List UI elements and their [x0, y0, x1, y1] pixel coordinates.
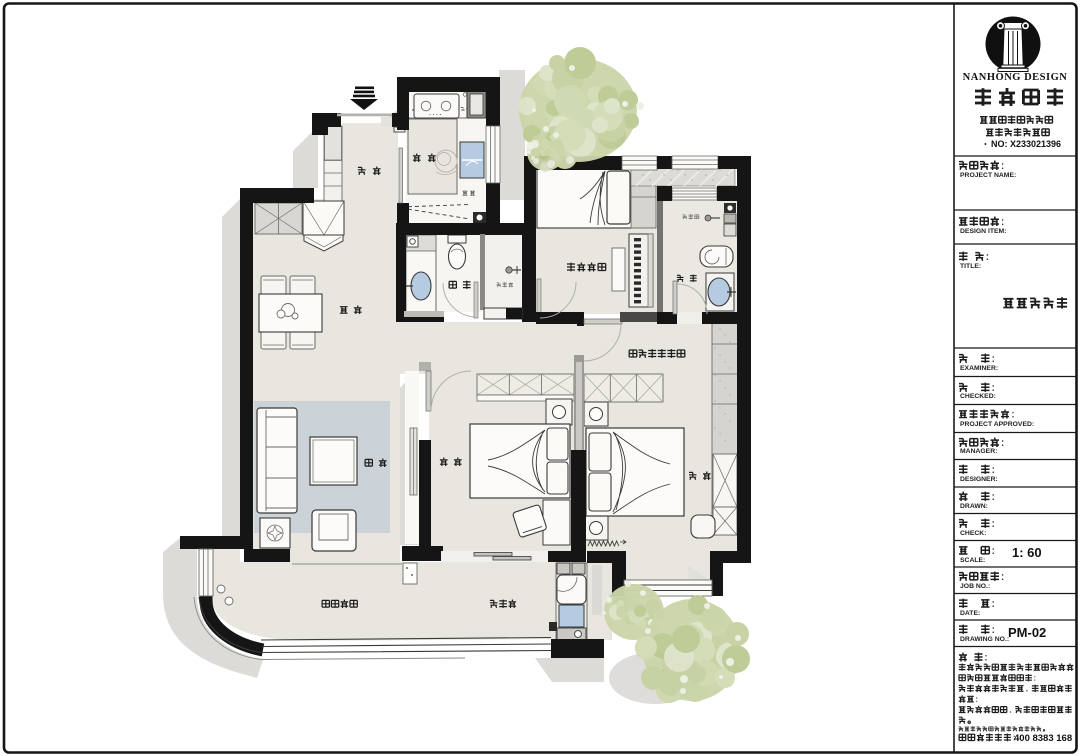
svg-text:TITLE:: TITLE: — [960, 263, 981, 270]
svg-text:EXAMINER:: EXAMINER: — [960, 365, 998, 372]
svg-text:1: 60: 1: 60 — [1012, 545, 1042, 560]
svg-text:CHECKED:: CHECKED: — [960, 393, 996, 400]
svg-text:DRAWN:: DRAWN: — [960, 503, 988, 510]
svg-text:SCALE:: SCALE: — [960, 557, 985, 564]
svg-text:MANAGER:: MANAGER: — [960, 448, 997, 455]
svg-text:DATE:: DATE: — [960, 610, 980, 617]
svg-text:DRAWING NO.:: DRAWING NO.: — [960, 636, 1009, 643]
svg-text:PM-02: PM-02 — [1008, 625, 1046, 640]
svg-text:PROJECT NAME:: PROJECT NAME: — [960, 172, 1016, 179]
svg-text:CHECK:: CHECK: — [960, 530, 986, 537]
svg-text:JOB NO.:: JOB NO.: — [960, 583, 990, 590]
svg-text:NANHONG DESIGN: NANHONG DESIGN — [963, 72, 1068, 83]
svg-text:NO: X233021396: NO: X233021396 — [991, 139, 1061, 149]
svg-text:400 8383 168: 400 8383 168 — [1014, 733, 1072, 744]
svg-text:PROJECT APPROVED:: PROJECT APPROVED: — [960, 421, 1034, 428]
svg-text:DESIGNER:: DESIGNER: — [960, 476, 998, 483]
svg-text:DESIGN ITEM:: DESIGN ITEM: — [960, 228, 1006, 235]
